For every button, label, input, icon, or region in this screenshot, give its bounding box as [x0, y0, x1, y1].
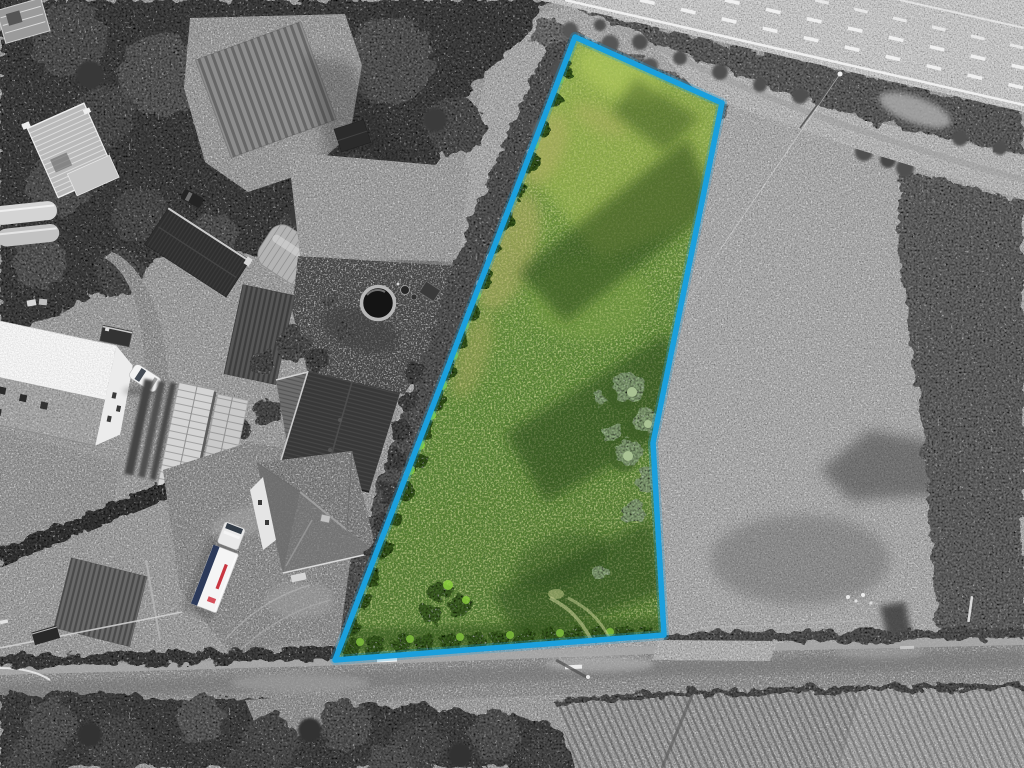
- road-dash: [900, 646, 914, 649]
- chimney: [320, 514, 330, 523]
- round-pool: [362, 287, 395, 320]
- gravel-pullin: [652, 640, 778, 661]
- yard-item: [39, 299, 47, 306]
- crop-field-light-panel: [838, 682, 1024, 768]
- aerial-photo: [0, 0, 1024, 768]
- lawn: [288, 152, 470, 262]
- aerial-photo-stage: [0, 0, 1024, 768]
